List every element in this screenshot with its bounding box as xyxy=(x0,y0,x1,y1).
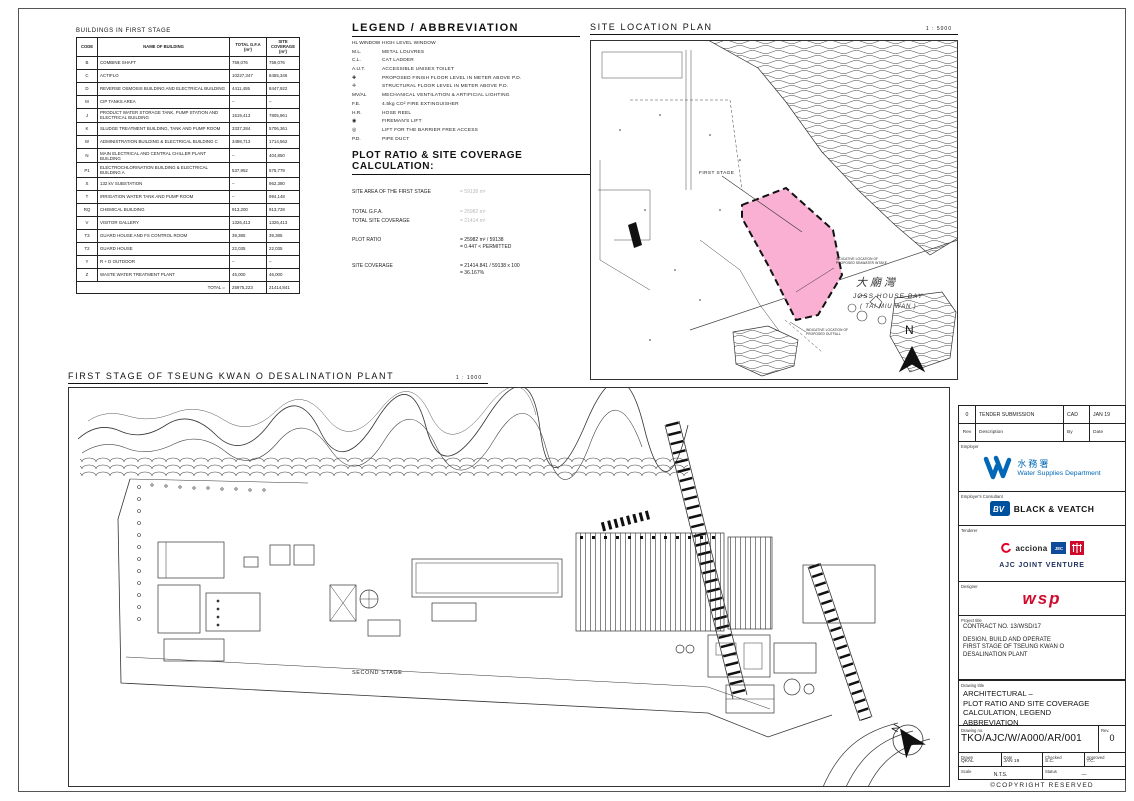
building-name: PRODUCT WATER STORAGE TANK, PUMP STATION… xyxy=(97,109,229,122)
building-gfa: 1519,413 xyxy=(229,109,266,122)
legend-description: HOSE REEL xyxy=(382,111,411,116)
legend-symbol: P.D. xyxy=(352,137,382,142)
drawing-title-line1: ARCHITECTURAL – xyxy=(963,689,1121,699)
plot-ratio-values: = 25982 m² / 59138 = 0.447 < PERMITTED xyxy=(460,237,511,251)
north-label: N xyxy=(905,323,914,337)
first-stage-label: FIRST STAGE xyxy=(699,171,734,176)
building-name: ELECTROCHLORINATION BUILDING & ELECTRICA… xyxy=(97,163,229,176)
date-label: Date xyxy=(1004,755,1013,760)
legend-description: PIPE DUCT xyxy=(382,137,409,142)
building-name: WASTE WATER TREATMENT PLANT xyxy=(97,269,229,281)
designer-label: Designer xyxy=(961,584,978,589)
plot-ratio-section: PLOT RATIO & SITE COVERAGE CALCULATION: … xyxy=(352,150,592,277)
revision-header-date: Date xyxy=(1089,424,1125,441)
legend-symbol: F.E. xyxy=(352,102,382,107)
building-gfa: 39,385 xyxy=(229,230,266,242)
consultant-label: Employer's Consultant xyxy=(961,494,1003,499)
plot-ratio-row: PLOT RATIO = 25982 m² / 59138 = 0.447 < … xyxy=(352,237,592,251)
table-row: Z WASTE WATER TREATMENT PLANT 45,000 46,… xyxy=(77,268,299,281)
tenderer-section: Tenderer acciona JEC AJC JOINT VENTURE xyxy=(959,526,1125,582)
legend-item: A.U.T. ACCESSIBLE UNISEX TOILET xyxy=(352,67,580,76)
legend-symbol: ◉ xyxy=(352,119,382,124)
building-gfa: – xyxy=(229,96,266,108)
bay-name-english-alt: ( TAI MIU WAN ) xyxy=(860,304,916,310)
drawing-title-line2: PLOT RATIO AND SITE COVERAGE xyxy=(963,699,1121,709)
building-code: D xyxy=(77,83,97,95)
drawing-title-label: Drawing title xyxy=(961,683,984,688)
header-name: NAME OF BUILDING xyxy=(97,38,229,56)
building-code: M xyxy=(77,96,97,108)
legend-symbol: ✛ xyxy=(352,84,382,89)
building-gfa: 4411,455 xyxy=(229,83,266,95)
total-coverage-row: TOTAL SITE COVERAGE = 21414 m² xyxy=(352,218,592,225)
site-location-plan-title: SITE LOCATION PLAN xyxy=(590,22,713,32)
legend-item: ✛ STRUCTURAL FLOOR LEVEL IN METER ABOVE … xyxy=(352,84,580,93)
building-gfa: – xyxy=(229,191,266,203)
legend-symbol: A.U.T. xyxy=(352,67,382,72)
table-row: T IRRIGATION WATER TANK AND PUMP ROOM – … xyxy=(77,190,299,203)
wsd-logo-icon xyxy=(983,454,1013,480)
total-gfa-value: = 25982 m² xyxy=(460,209,485,216)
status-label: Status xyxy=(1045,769,1057,774)
building-gfa: – xyxy=(229,149,266,162)
building-coverage: 46,000 xyxy=(266,269,299,281)
project-line2: DESIGN, BUILD AND OPERATE xyxy=(963,637,1121,645)
drawing-no-value: TKO/AJC/W/A000/AR/001 xyxy=(961,733,1096,744)
legend-symbol: C.L. xyxy=(352,58,382,63)
drawing-title-line4: ABBREVIATION xyxy=(963,718,1121,727)
bay-name-chinese: 大廟灣 xyxy=(856,274,898,290)
acciona-name: acciona xyxy=(1016,544,1048,553)
tree-marks xyxy=(138,484,266,621)
building-code: W xyxy=(77,136,97,148)
plan-border xyxy=(69,388,950,787)
building-name: VISITOR GALLERY xyxy=(97,217,229,229)
legend-description: 4.5kg CO² FIRE EXTINGUISHER xyxy=(382,102,459,107)
wsp-logo: wsp xyxy=(1022,589,1061,609)
main-plan-header: FIRST STAGE OF TSEUNG KWAN O DESALINATIO… xyxy=(68,371,488,384)
plot-ratio-label: PLOT RATIO xyxy=(352,237,460,251)
building-name: SLUDGE TREATMENT BUILDING, TANK AND PUMP… xyxy=(97,123,229,135)
building-coverage: 22,035 xyxy=(266,243,299,255)
building-coverage: 8455,346 xyxy=(266,70,299,82)
legend-section: LEGEND / ABBREVIATION HL WINDOW HIGH LEV… xyxy=(352,22,580,145)
black-bar-structure xyxy=(628,222,642,248)
building-name: 132 kV SUBSTATION xyxy=(97,178,229,190)
title-block: 0 TENDER SUBMISSION CAD JAN 19 Rev Descr… xyxy=(958,405,1126,780)
black-veatch-logo-icon: BV xyxy=(990,501,1010,516)
building-gfa: 3498,713 xyxy=(229,136,266,148)
revision-header-desc: Description xyxy=(975,424,1063,441)
site-boundary xyxy=(118,479,832,737)
building-coverage: 962,380 xyxy=(266,178,299,190)
revision-row: 0 TENDER SUBMISSION CAD JAN 19 xyxy=(959,406,1125,424)
contract-no: CONTRACT NO. 13/WSD/17 xyxy=(963,624,1121,632)
building-coverage: 5706,361 xyxy=(266,123,299,135)
building-code: S xyxy=(77,178,97,190)
building-gfa: – xyxy=(229,178,266,190)
table-row: M CIP TANKS AREA – – xyxy=(77,95,299,108)
revision-by: CAD xyxy=(1063,406,1089,424)
building-name: IRRIGATION WATER TANK AND PUMP ROOM xyxy=(97,191,229,203)
checked-label: Checked xyxy=(1045,755,1062,760)
building-code: J xyxy=(77,109,97,122)
table-row: V VISITOR GALLERY 1326,413 1326,413 xyxy=(77,216,299,229)
building-gfa: 3337,284 xyxy=(229,123,266,135)
site-area-value: = 59138 m² xyxy=(460,189,485,196)
table-row: RQ CHEMICAL BUILDING 913,200 913,728 xyxy=(77,203,299,216)
building-gfa: 759,076 xyxy=(229,57,266,69)
building-gfa: – xyxy=(229,256,266,268)
project-title-section: Project title CONTRACT NO. 13/WSD/17 DES… xyxy=(959,616,1125,680)
legend-item: H.R. HOSE REEL xyxy=(352,111,580,120)
employer-label: Employer xyxy=(961,444,979,449)
site-coverage-row: SITE COVERAGE = 21414.841 / 59138 x 100 … xyxy=(352,263,592,277)
meta-row: DrawnQKAL DateJAN 19 CheckedS.C. Approve… xyxy=(959,753,1125,767)
legend-item: C.L. CAT LADDER xyxy=(352,58,580,67)
rev-label: Rev. xyxy=(1101,728,1109,733)
building-coverage: – xyxy=(266,96,299,108)
employer-section: Employer 水務署 Water Supplies Department xyxy=(959,442,1125,492)
building-name: GUARD HOUSE xyxy=(97,243,229,255)
note-seawater-intake: INDICATIVE LOCATION OF PROPOSED SEAWATER… xyxy=(836,258,892,266)
project-line3: FIRST STAGE OF TSEUNG KWAN O xyxy=(963,644,1121,652)
second-stage-label: SECOND STAGE xyxy=(352,670,403,676)
table-row: J PRODUCT WATER STORAGE TANK, PUMP STATI… xyxy=(77,108,299,122)
building-coverage: 994,148 xyxy=(266,191,299,203)
legend-symbol: ◎ xyxy=(352,128,382,133)
building-name: R + D OUTDOOR xyxy=(97,256,229,268)
building-gfa: 45,000 xyxy=(229,269,266,281)
table-row: P1 ELECTROCHLORINATION BUILDING & ELECTR… xyxy=(77,162,299,176)
building-coverage: 39,385 xyxy=(266,230,299,242)
buildings-table-title: BUILDINGS IN FIRST STAGE xyxy=(76,28,171,34)
revision-header-rev: Rev xyxy=(959,424,975,441)
building-coverage: 404,850 xyxy=(266,149,299,162)
wsd-name-chinese: 水務署 xyxy=(1017,457,1100,470)
revision-header-by: By xyxy=(1063,424,1089,441)
scale-label: Scale xyxy=(961,769,971,774)
building-gfa: 537,952 xyxy=(229,163,266,176)
building-gfa: 10227,347 xyxy=(229,70,266,82)
plot-ratio-line2: = 0.447 < PERMITTED xyxy=(460,244,511,251)
building-gfa: 22,035 xyxy=(229,243,266,255)
plot-ratio-line1: = 25982 m² / 59138 xyxy=(460,237,511,244)
building-code: V xyxy=(77,217,97,229)
designer-section: Designer wsp xyxy=(959,582,1125,616)
total-coverage: 21414,841 xyxy=(266,282,299,293)
total-label: TOTAL = xyxy=(77,282,229,293)
legend-description: LIFT FOR THE BARRIER FREE ACCESS xyxy=(382,128,478,133)
project-line4: DESALINATION PLANT xyxy=(963,652,1121,660)
legend-description: PROPOSED FINISH FLOOR LEVEL IN METER ABO… xyxy=(382,76,521,81)
note-outfall: INDICATIVE LOCATION OF PROPOSED OUTFALL xyxy=(806,329,862,337)
legend-description: FIREMAN'S LIFT xyxy=(382,119,422,124)
site-coverage-line1: = 21414.841 / 59138 x 100 xyxy=(460,263,520,270)
revision-date: JAN 19 xyxy=(1089,406,1125,424)
building-name: ADMINISTRATION BUILDING & ELECTRICAL BUI… xyxy=(97,136,229,148)
access-roads xyxy=(823,723,930,787)
acciona-logo-icon xyxy=(1000,542,1012,554)
building-name: MAIN ELECTRICAL AND CENTRAL CHILLER PLAN… xyxy=(97,149,229,162)
header-code: CODE xyxy=(77,38,97,56)
building-code: RQ xyxy=(77,204,97,216)
building-coverage: – xyxy=(266,256,299,268)
table-row: T3 GUARD HOUSE AND FS CONTROL ROOM 39,38… xyxy=(77,229,299,242)
buildings-table-body: B COMBINE SHAFT 759,076 759,076 C ACTIFL… xyxy=(77,56,299,281)
drawing-sheet: BUILDINGS IN FIRST STAGE CODE NAME OF BU… xyxy=(0,0,1134,801)
legend-description: MECHANICAL VENTILATION & ARTIFICIAL LIGH… xyxy=(382,93,510,98)
building-code: N xyxy=(77,149,97,162)
revision-number: 0 xyxy=(959,406,975,424)
legend-symbol: M.L. xyxy=(352,50,382,55)
building-coverage: 1714,562 xyxy=(266,136,299,148)
building-name: COMBINE SHAFT xyxy=(97,57,229,69)
legend-description: METAL LOUVRES xyxy=(382,50,424,55)
site-location-plan-scale: 1 : 5000 xyxy=(926,26,958,32)
building-code: Z xyxy=(77,269,97,281)
site-coverage-line2: = 36.167% xyxy=(460,270,520,277)
table-row: D REVERSE OSMOSIS BUILDING AND ELECTRICA… xyxy=(77,82,299,95)
drawing-title-line3: CALCULATION, LEGEND xyxy=(963,708,1121,718)
shoreline xyxy=(78,387,688,480)
legend-item: MV/AL MECHANICAL VENTILATION & ARTIFICIA… xyxy=(352,93,580,102)
legend-item: P.D. PIPE DUCT xyxy=(352,137,580,146)
building-code: C xyxy=(77,70,97,82)
drawing-no-label: Drawing no. xyxy=(961,728,983,733)
legend-title: LEGEND / ABBREVIATION xyxy=(352,22,580,37)
building-coverage: 1326,413 xyxy=(266,217,299,229)
drawing-title-section: Drawing title ARCHITECTURAL – PLOT RATIO… xyxy=(959,680,1125,726)
main-plan-scale: 1 : 1000 xyxy=(456,375,488,381)
site-coverage-values: = 21414.841 / 59138 x 100 = 36.167% xyxy=(460,263,520,277)
building-code: T2 xyxy=(77,243,97,255)
drawn-label: Drawn xyxy=(961,755,973,760)
total-gfa-label: TOTAL G.F.A. xyxy=(352,209,460,216)
building-code: Y xyxy=(77,256,97,268)
table-row: W ADMINISTRATION BUILDING & ELECTRICAL B… xyxy=(77,135,299,148)
building-coverage: 7805,961 xyxy=(266,109,299,122)
building-coverage: 575,779 xyxy=(266,163,299,176)
copyright-notice: ©COPYRIGHT RESERVED xyxy=(958,782,1126,789)
total-coverage-label: TOTAL SITE COVERAGE xyxy=(352,218,460,225)
black-veatch-name: BLACK & VEATCH xyxy=(1014,504,1095,514)
table-row: Y R + D OUTDOOR – – xyxy=(77,255,299,268)
building-name: GUARD HOUSE AND FS CONTROL ROOM xyxy=(97,230,229,242)
site-area-label: SITE AREA OF THE FIRST STAGE xyxy=(352,189,460,196)
building-name: REVERSE OSMOSIS BUILDING AND ELECTRICAL … xyxy=(97,83,229,95)
site-coverage-label: SITE COVERAGE xyxy=(352,263,460,277)
site-area-row: SITE AREA OF THE FIRST STAGE = 59138 m² xyxy=(352,189,592,196)
legend-item: HL WINDOW HIGH LEVEL WINDOW xyxy=(352,41,580,50)
jec-logo: JEC xyxy=(1051,542,1066,554)
buildings xyxy=(158,533,875,713)
scale-status-row: ScaleN.T.S. Status— xyxy=(959,767,1125,779)
building-name: CHEMICAL BUILDING xyxy=(97,204,229,216)
scatter-marks xyxy=(619,114,741,341)
table-row: S 132 kV SUBSTATION – 962,380 xyxy=(77,177,299,190)
legend-item: ◎ LIFT FOR THE BARRIER FREE ACCESS xyxy=(352,128,580,137)
buildings-table-total-row: TOTAL = 25975,223 21414,841 xyxy=(77,281,299,293)
header-gfa: TOTAL G.F.A (m²) xyxy=(229,38,266,56)
bay-name-english: JOSS HOUSE BAY xyxy=(853,293,923,300)
buildings-table: CODE NAME OF BUILDING TOTAL G.F.A (m²) S… xyxy=(76,37,300,294)
building-gfa: 913,200 xyxy=(229,204,266,216)
building-coverage: 759,076 xyxy=(266,57,299,69)
building-coverage: 8447,922 xyxy=(266,83,299,95)
building-code: B xyxy=(77,57,97,69)
site-location-plan-drawing xyxy=(590,40,958,380)
building-code: P1 xyxy=(77,163,97,176)
building-name: CIP TANKS AREA xyxy=(97,96,229,108)
table-row: B COMBINE SHAFT 759,076 759,076 xyxy=(77,56,299,69)
legend-symbol: HL WINDOW xyxy=(352,41,382,46)
building-code: T3 xyxy=(77,230,97,242)
total-gfa-row: TOTAL G.F.A. = 25982 m² xyxy=(352,209,592,216)
table-row: T2 GUARD HOUSE 22,035 22,035 xyxy=(77,242,299,255)
tenderer-label: Tenderer xyxy=(961,528,978,533)
legend-item: ◉ FIREMAN'S LIFT xyxy=(352,119,580,128)
wsd-name-english: Water Supplies Department xyxy=(1017,470,1100,477)
building-gfa: 1326,413 xyxy=(229,217,266,229)
revision-header-row: Rev Description By Date xyxy=(959,424,1125,442)
legend-description: HIGH LEVEL WINDOW xyxy=(382,41,436,46)
building-name: ACTIFLO xyxy=(97,70,229,82)
legend-items: HL WINDOW HIGH LEVEL WINDOW M.L. METAL L… xyxy=(352,41,580,145)
header-coverage: SITE COVERAGE (m²) xyxy=(266,38,299,56)
legend-item: F.E. 4.5kg CO² FIRE EXTINGUISHER xyxy=(352,102,580,111)
total-coverage-value: = 21414 m² xyxy=(460,218,485,225)
building-coverage: 913,728 xyxy=(266,204,299,216)
drawing-no-section: Drawing no. TKO/AJC/W/A000/AR/001 Rev. 0 xyxy=(959,726,1125,753)
legend-description: STRUCTURAL FLOOR LEVEL IN METER ABOVE P.… xyxy=(382,84,508,89)
legend-symbol: MV/AL xyxy=(352,93,382,98)
rev-value: 0 xyxy=(1099,733,1125,743)
total-gfa: 25975,223 xyxy=(229,282,266,293)
building-code: T xyxy=(77,191,97,203)
svg-text:BV: BV xyxy=(993,505,1005,514)
building-code: K xyxy=(77,123,97,135)
revision-description: TENDER SUBMISSION xyxy=(975,406,1063,424)
table-row: N MAIN ELECTRICAL AND CENTRAL CHILLER PL… xyxy=(77,148,299,162)
main-plan-drawing xyxy=(68,387,950,787)
legend-description: CAT LADDER xyxy=(382,58,414,63)
cscec-logo-icon xyxy=(1070,541,1084,555)
legend-description: ACCESSIBLE UNISEX TOILET xyxy=(382,67,454,72)
site-location-plan-header: SITE LOCATION PLAN 1 : 5000 xyxy=(590,22,958,35)
main-plan-title: FIRST STAGE OF TSEUNG KWAN O DESALINATIO… xyxy=(68,371,394,381)
plot-ratio-title: PLOT RATIO & SITE COVERAGE CALCULATION: xyxy=(352,150,592,175)
consultant-section: Employer's Consultant BV BLACK & VEATCH xyxy=(959,492,1125,526)
legend-symbol: H.R. xyxy=(352,111,382,116)
table-row: K SLUDGE TREATMENT BUILDING, TANK AND PU… xyxy=(77,122,299,135)
project-title-label: Project title xyxy=(961,618,982,623)
legend-symbol: ✚ xyxy=(352,76,382,81)
ajc-joint-venture-name: AJC JOINT VENTURE xyxy=(959,562,1125,569)
table-row: C ACTIFLO 10227,347 8455,346 xyxy=(77,69,299,82)
buildings-table-header: CODE NAME OF BUILDING TOTAL G.F.A (m²) S… xyxy=(77,38,299,56)
approved-label: Approved xyxy=(1087,755,1105,760)
